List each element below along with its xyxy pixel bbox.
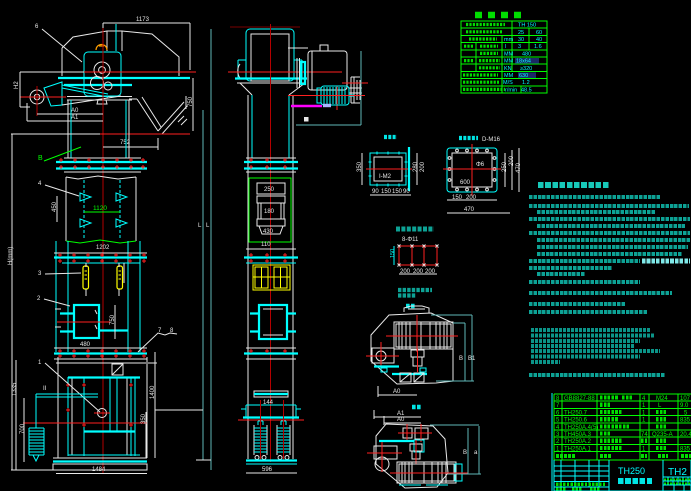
svg-text:250: 250 [502, 161, 508, 172]
svg-text:1173: 1173 [136, 17, 150, 23]
svg-text:KN: KN [504, 66, 512, 72]
svg-text:TH250.7: TH250.7 [564, 410, 588, 416]
svg-text:430: 430 [263, 229, 274, 235]
svg-text:700: 700 [20, 423, 26, 434]
svg-text:A0: A0 [71, 108, 79, 114]
svg-text:20.4: 20.4 [680, 432, 691, 438]
svg-text:Q235-A: Q235-A [652, 432, 673, 438]
svg-text:200: 200 [509, 155, 515, 166]
svg-text:B: B [463, 450, 467, 456]
svg-text:200: 200 [413, 269, 424, 275]
svg-text:1.6: 1.6 [534, 44, 542, 50]
svg-text:3: 3 [518, 44, 521, 50]
svg-text:180: 180 [264, 209, 275, 215]
svg-text:250: 250 [264, 187, 275, 193]
svg-text:1400: 1400 [150, 385, 156, 399]
svg-text:150: 150 [392, 189, 403, 195]
svg-text:600: 600 [460, 180, 471, 186]
svg-text:TH250A.4(5): TH250A.4(5) [564, 425, 598, 431]
svg-text:H(mm): H(mm) [8, 247, 14, 265]
svg-text:M/S: M/S [503, 80, 513, 86]
svg-text:280: 280 [413, 161, 419, 172]
svg-text:835: 835 [680, 418, 691, 424]
svg-text:18x64: 18x64 [516, 59, 531, 65]
svg-text:TH250.6: TH250.6 [564, 418, 588, 424]
svg-text:MM: MM [504, 73, 514, 79]
svg-text:40: 40 [536, 37, 542, 43]
svg-text:1202: 1202 [96, 245, 110, 251]
svg-text:150: 150 [381, 189, 392, 195]
svg-text:470: 470 [516, 162, 522, 173]
svg-text:30: 30 [518, 37, 524, 43]
svg-text:TH2: TH2 [668, 467, 687, 478]
svg-text:MM: MM [504, 51, 514, 57]
svg-text:25: 25 [518, 30, 524, 36]
svg-text:200: 200 [400, 269, 411, 275]
svg-text:200: 200 [466, 195, 477, 201]
svg-text:M24: M24 [656, 396, 668, 402]
svg-text:TH250A.1: TH250A.1 [564, 446, 592, 452]
svg-text:350: 350 [357, 161, 363, 172]
svg-text:150: 150 [390, 249, 396, 258]
svg-text:B: B [459, 356, 463, 362]
svg-text:480: 480 [80, 342, 91, 348]
svg-text:107: 107 [680, 396, 691, 402]
svg-text:I-M2: I-M2 [379, 174, 392, 180]
svg-text:60: 60 [536, 30, 542, 36]
svg-text:470: 470 [464, 207, 475, 213]
svg-text:MM: MM [504, 59, 514, 65]
svg-text:630: 630 [519, 73, 528, 79]
svg-text:110: 110 [261, 242, 271, 248]
svg-text:TH250A.2: TH250A.2 [564, 439, 592, 445]
svg-text:8-Φ11: 8-Φ11 [402, 237, 419, 243]
svg-text:1120: 1120 [93, 205, 107, 212]
svg-text:≥320: ≥320 [520, 66, 532, 72]
svg-text:480: 480 [522, 51, 531, 57]
svg-text:mm: mm [504, 37, 514, 43]
svg-text:TH250: TH250 [618, 466, 645, 476]
svg-text:H2: H2 [14, 81, 20, 89]
svg-text:750: 750 [110, 314, 116, 325]
svg-text:90: 90 [372, 189, 379, 195]
svg-text:TH 150: TH 150 [518, 23, 536, 29]
svg-text:r/min: r/min [505, 87, 517, 93]
svg-text:II: II [43, 386, 47, 392]
svg-text:9.0: 9.0 [680, 403, 689, 409]
svg-text:Φ6: Φ6 [476, 162, 485, 168]
svg-text:GB8827-88: GB8827-88 [564, 396, 595, 402]
svg-text:350: 350 [141, 413, 147, 424]
svg-text:200: 200 [425, 269, 436, 275]
svg-text:B: B [38, 155, 43, 162]
svg-text:450: 450 [52, 201, 58, 212]
svg-text:596: 596 [262, 467, 273, 473]
svg-text:A1: A1 [71, 115, 79, 121]
svg-text:A0: A0 [393, 389, 401, 395]
svg-text:90: 90 [403, 189, 410, 195]
svg-text:TH450A.3: TH450A.3 [564, 432, 592, 438]
svg-text:48.5: 48.5 [521, 87, 532, 93]
svg-text:1335: 1335 [12, 382, 18, 396]
svg-text:150: 150 [452, 195, 463, 201]
svg-text:200: 200 [420, 161, 426, 172]
svg-text:1484: 1484 [92, 467, 106, 473]
svg-text:l: l [505, 44, 506, 50]
svg-text:74: 74 [641, 432, 648, 438]
svg-text:A0: A0 [397, 417, 405, 423]
svg-text:1.2: 1.2 [522, 80, 530, 86]
svg-text:D-M16: D-M16 [482, 137, 501, 143]
svg-text:750: 750 [188, 96, 194, 107]
svg-text:B1: B1 [468, 356, 476, 362]
svg-text:835: 835 [680, 446, 691, 452]
